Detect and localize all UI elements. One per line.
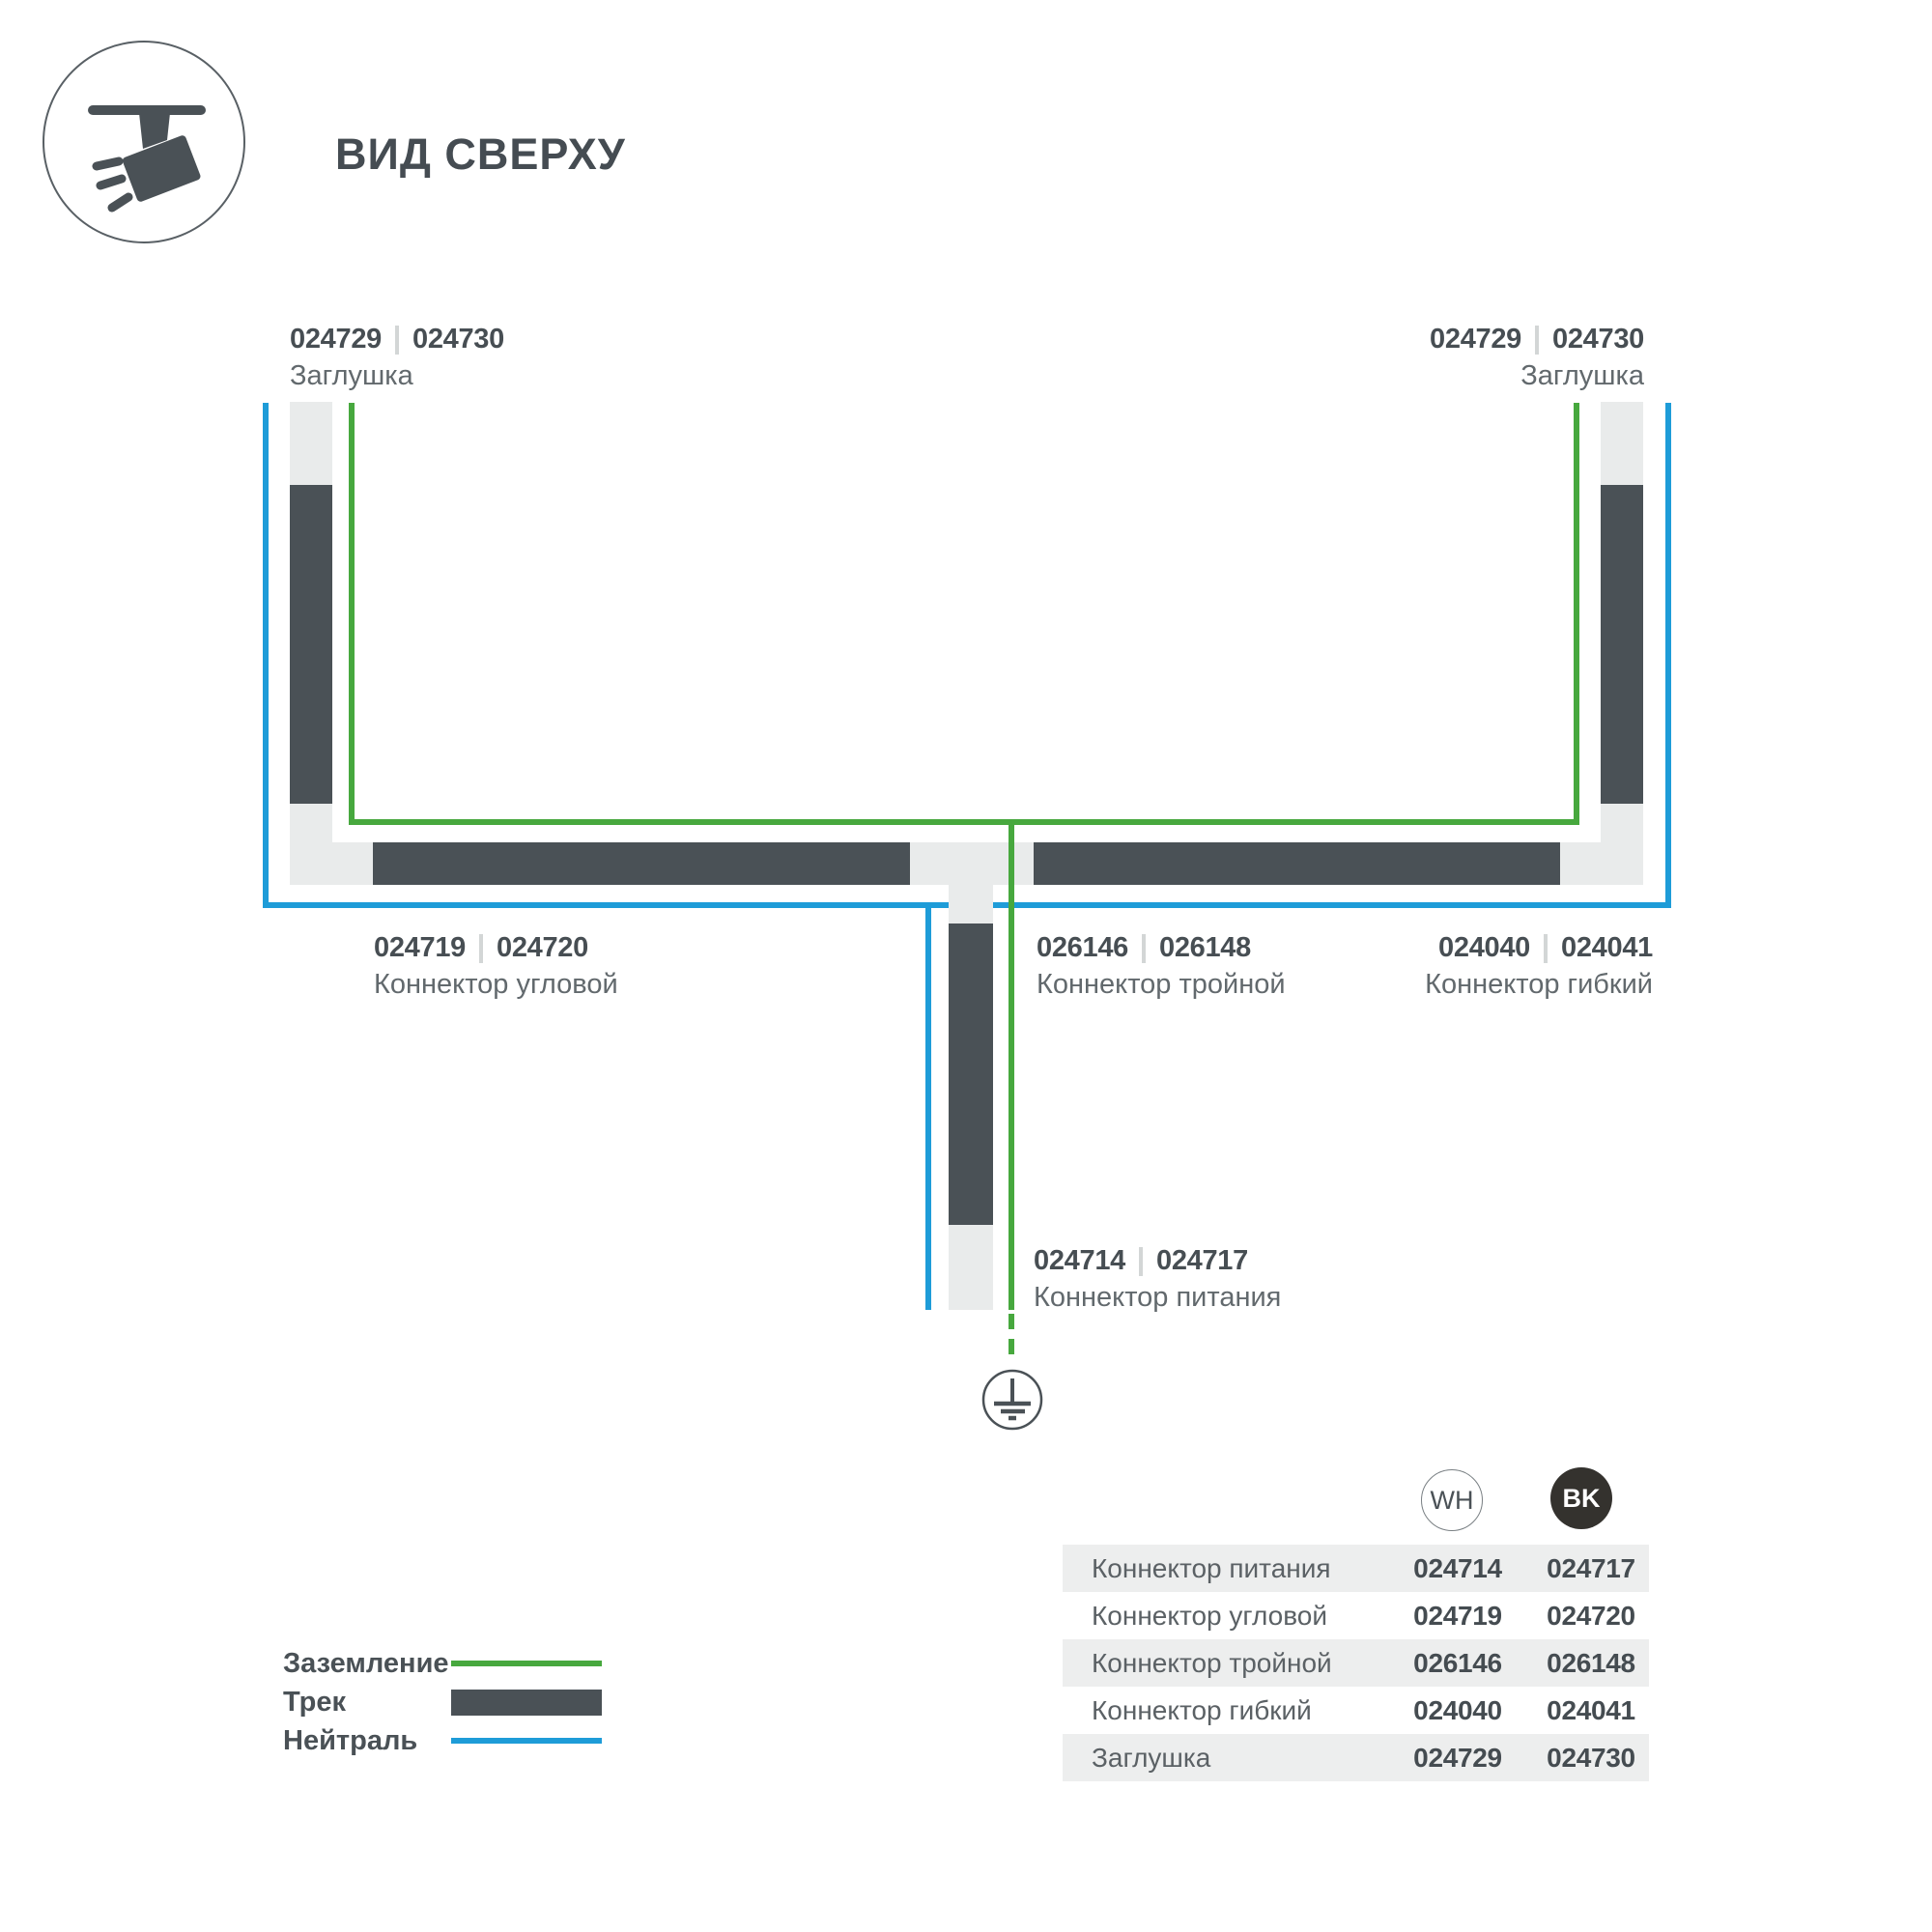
code-wh: 024719 [374,932,466,964]
ground-line-right-vertical [1574,403,1579,825]
cell-wh: 024040 [1398,1695,1518,1726]
endcap-right-connector [1601,402,1643,485]
row-label: Коннектор угловой [1063,1601,1398,1632]
track-left-vertical [290,485,332,804]
ground-line-swatch [451,1661,602,1666]
label-codes: 024729 024730 [290,324,504,355]
cell-bk: 024730 [1533,1743,1649,1774]
label-power-connector: 024714 024717 Коннектор питания [1034,1245,1281,1314]
corner-connector-right-b [1560,842,1643,885]
cell-wh: 024719 [1398,1601,1518,1632]
track-swatch [451,1690,602,1716]
label-corner-connector: 024719 024720 Коннектор угловой [374,932,618,1001]
cell-wh: 024714 [1398,1553,1518,1584]
track-center-vertical [949,923,993,1225]
icon-lamp-head [122,134,202,203]
neutral-line-swatch [451,1738,602,1744]
legend-item-ground: Заземление [283,1644,602,1683]
label-codes: 024729 024730 [1430,324,1644,355]
track-horizontal-left [373,842,910,885]
code-bk: 024730 [1552,324,1644,355]
code-wh: 026146 [1037,932,1128,964]
track-horizontal-right [1034,842,1560,885]
code-bk: 024717 [1156,1245,1248,1277]
table-row: Коннектор гибкий 024040 024041 [1063,1687,1649,1734]
color-badge-white: WH [1421,1469,1483,1531]
code-separator [1139,1247,1143,1276]
code-separator [479,934,483,963]
table-row: Заглушка 024729 024730 [1063,1734,1649,1781]
label-name: Коннектор угловой [374,969,618,1001]
table-row: Коннектор тройной 026146 026148 [1063,1639,1649,1687]
label-name: Заглушка [290,360,504,392]
label-codes: 026146 026148 [1037,932,1286,964]
legend-label: Заземление [283,1648,451,1680]
label-name: Заглушка [1430,360,1644,392]
label-name: Коннектор питания [1034,1282,1281,1314]
legend-label: Трек [283,1687,451,1719]
row-label: Заглушка [1063,1743,1398,1774]
label-codes: 024040 024041 [1425,932,1653,964]
label-flex-connector: 024040 024041 Коннектор гибкий [1425,932,1653,1001]
label-codes: 024714 024717 [1034,1245,1281,1277]
legend: Заземление Трек Нейтраль [283,1644,602,1760]
code-bk: 024041 [1561,932,1653,964]
ground-line-left-vertical [349,403,355,825]
cell-wh: 024729 [1398,1743,1518,1774]
table-row: Коннектор питания 024714 024717 [1063,1545,1649,1592]
neutral-line-right-vertical [1665,403,1671,908]
ground-line-horizontal [349,819,1579,825]
color-badge-black: BK [1550,1467,1612,1529]
cell-wh: 026146 [1398,1648,1518,1679]
neutral-line-left-vertical [263,403,269,908]
cell-bk: 024041 [1533,1695,1649,1726]
code-wh: 024729 [290,324,382,355]
label-name: Коннектор тройной [1037,969,1286,1001]
track-light-glyph [44,43,243,241]
code-wh: 024040 [1438,932,1530,964]
cell-bk: 024720 [1533,1601,1649,1632]
earth-ground-icon [980,1367,1045,1433]
endcap-left-connector [290,402,332,485]
table-row: Коннектор угловой 024719 024720 [1063,1592,1649,1639]
code-separator [395,326,399,355]
legend-label: Нейтраль [283,1725,451,1757]
track-right-vertical [1601,485,1643,804]
code-bk: 024730 [412,324,504,355]
cell-bk: 024717 [1533,1553,1649,1584]
code-wh: 024729 [1430,324,1521,355]
power-connector [949,1225,993,1310]
code-bk: 026148 [1159,932,1251,964]
code-separator [1544,934,1548,963]
ground-line-branch-vertical [1009,825,1014,1310]
triple-connector-horizontal [910,842,1034,885]
ground-line-dashed [1009,1314,1014,1362]
label-codes: 024719 024720 [374,932,618,964]
label-endcap-right: 024729 024730 Заглушка [1430,324,1644,392]
row-label: Коннектор тройной [1063,1648,1398,1679]
corner-connector-right-a [1601,804,1643,842]
triple-connector-vertical [949,885,993,923]
label-endcap-left: 024729 024730 Заглушка [290,324,504,392]
icon-light-rays [97,161,128,208]
row-label: Коннектор питания [1063,1553,1398,1584]
row-label: Коннектор гибкий [1063,1695,1398,1726]
parts-table: Коннектор питания 024714 024717 Коннекто… [1063,1545,1649,1781]
corner-connector-left-b [290,842,373,885]
cell-bk: 026148 [1533,1648,1649,1679]
legend-item-neutral: Нейтраль [283,1721,602,1760]
corner-connector-left-a [290,804,332,842]
label-name: Коннектор гибкий [1425,969,1653,1001]
code-separator [1535,326,1539,355]
page: ВИД СВЕРХУ 024729 024730 Заглушка [0,0,1932,1932]
track-light-icon [43,41,245,243]
label-triple-connector: 026146 026148 Коннектор тройной [1037,932,1286,1001]
legend-item-track: Трек [283,1683,602,1721]
code-separator [1142,934,1146,963]
neutral-line-branch-vertical [925,908,931,1310]
code-bk: 024720 [497,932,588,964]
page-title: ВИД СВЕРХУ [335,129,626,180]
code-wh: 024714 [1034,1245,1125,1277]
